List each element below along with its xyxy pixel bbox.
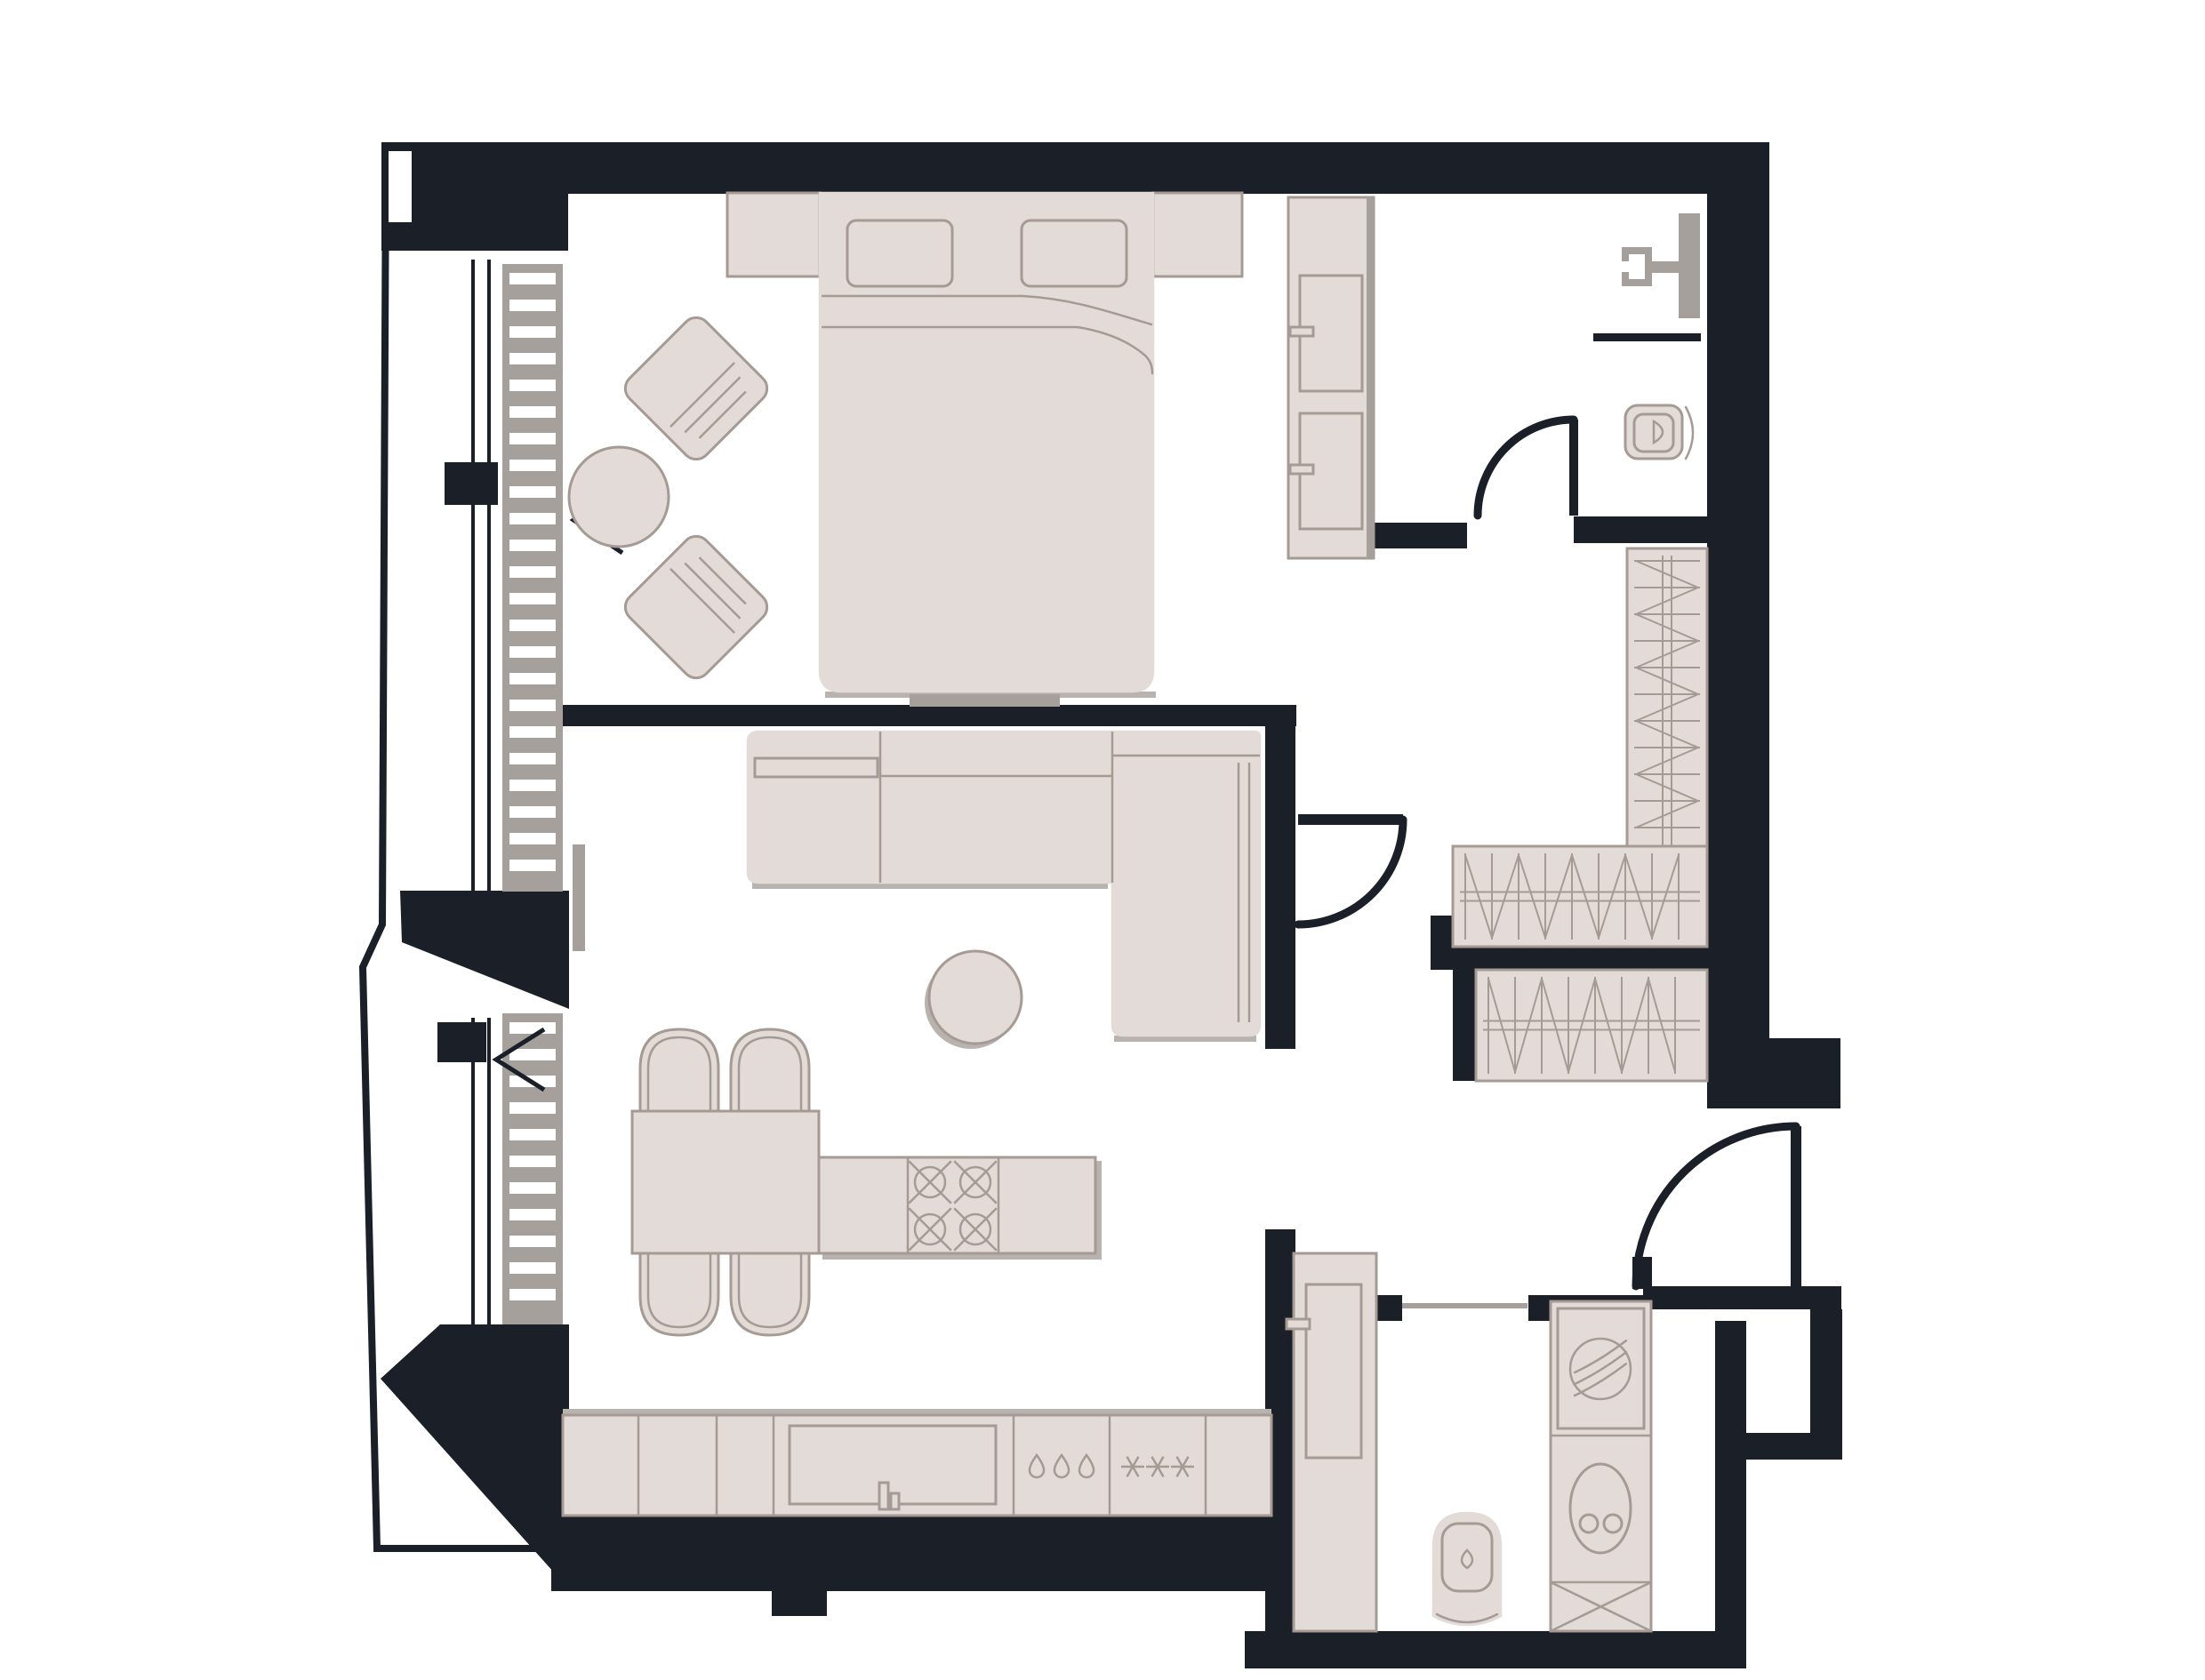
bedroom-radiator-slat <box>509 620 556 631</box>
kitchen-window-pier <box>437 1022 486 1062</box>
bedroom-radiator-slat <box>509 406 556 418</box>
bath2-bottom-wall <box>1245 1631 1746 1668</box>
bedroom-living-divider <box>551 705 1296 726</box>
bath1-partition-line <box>1593 333 1701 341</box>
kitchen-radiator-slat <box>509 1102 556 1114</box>
kitchen-radiator-slat <box>509 1182 556 1194</box>
kitchen-bottom-notch <box>772 1591 827 1616</box>
bedroom-radiator-slat <box>509 593 556 604</box>
bath2-cabinet-door <box>1306 1284 1361 1458</box>
bath2-top-pier <box>1376 1295 1402 1321</box>
bedroom-side-table <box>569 447 669 547</box>
kitchen-island <box>819 1157 1095 1253</box>
floor-plan-svg <box>0 0 2205 1680</box>
bedroom-radiator-slat <box>509 486 556 498</box>
bedroom-radiator-slat <box>509 700 556 711</box>
hall-wardrobe-vertical <box>1627 548 1707 853</box>
bedroom-radiator-slat <box>509 646 556 658</box>
bed-pillow-right <box>1022 220 1127 286</box>
entry-bottom-wall <box>1643 1286 1841 1309</box>
hall-south-wall <box>1431 947 1707 970</box>
bedroom-cabinet-handle-1 <box>1290 327 1313 336</box>
tv-console <box>910 694 1060 707</box>
bed-headboard-right <box>1153 193 1242 276</box>
kitchen-faucet-a <box>879 1483 888 1509</box>
bed-pillow-left <box>847 220 952 286</box>
hall-door-leaf <box>1298 814 1403 825</box>
bedroom-radiator-slat <box>509 540 556 551</box>
kitchen-bottom-wall <box>551 1516 1271 1591</box>
floor-plan <box>0 0 2205 1680</box>
bedroom-radiator-slat <box>509 753 556 764</box>
sofa-armrest-shelf <box>755 758 878 777</box>
bath1-bottom-wall-right <box>1574 516 1707 543</box>
bath2-cabinet-handle <box>1287 1319 1310 1329</box>
bedroom-radiator-slat <box>509 566 556 578</box>
coffee-table <box>929 951 1022 1044</box>
bedroom-radiator-slat <box>509 433 556 444</box>
entry-door-leaf <box>1791 1126 1801 1286</box>
kitchen-radiator-slat <box>509 1209 556 1220</box>
dining-chair-2 <box>731 1029 809 1116</box>
bedroom-radiator-slat <box>509 273 556 284</box>
bath1-faucet-knob-inner <box>1629 254 1645 279</box>
kitchen-radiator-slat <box>509 1129 556 1140</box>
bed-headboard-left <box>727 193 820 276</box>
bedroom-radiator-slat <box>509 460 556 471</box>
living-east-wall-upper <box>1265 705 1295 1049</box>
dining-table <box>632 1111 819 1253</box>
kitchen-radiator-slat <box>509 1262 556 1274</box>
bedroom-radiator-slat <box>509 833 556 844</box>
bedroom-radiator-slat <box>509 300 556 311</box>
bedroom-cabinet-handle-2 <box>1290 465 1313 474</box>
dining-chair-4 <box>731 1248 809 1335</box>
right-wall <box>1707 142 1769 1038</box>
kitchen-radiator-slat <box>509 1049 556 1060</box>
tv <box>573 844 585 951</box>
kitchen-faucet-b <box>891 1493 899 1509</box>
dining-chair-3 <box>640 1248 718 1335</box>
top-wall <box>381 142 1769 194</box>
facade-notch <box>389 151 412 222</box>
bedroom-radiator-slat <box>509 353 556 364</box>
bath1-faucet-stem <box>1650 261 1679 273</box>
bath1-door-leaf <box>1569 420 1578 516</box>
bedroom-radiator-slat <box>509 513 556 524</box>
closet-lower-left-wall <box>1453 970 1476 1081</box>
bedroom-radiator-slat <box>509 860 556 871</box>
bath1-sink-counter <box>1679 213 1700 318</box>
kitchen-radiator-slat <box>509 1236 556 1247</box>
bath1-faucet-knob-notch <box>1622 261 1629 272</box>
entry-stub-wall <box>1707 1038 1840 1108</box>
kitchen-radiator-slat <box>509 1156 556 1167</box>
bedroom-cabinet-back-edge <box>1367 197 1374 558</box>
entry-corner-wall-h <box>1746 1433 1842 1460</box>
dining-chair-1 <box>640 1029 718 1116</box>
bath2-right-wall <box>1715 1321 1746 1631</box>
kitchen-radiator-slat <box>509 1289 556 1300</box>
bedroom-radiator-slat <box>509 726 556 738</box>
bedroom-radiator-slat <box>509 806 556 818</box>
kitchen-radiator-slat <box>509 1022 556 1034</box>
bedroom-radiator-slat <box>509 780 556 791</box>
hall-wardrobe-upper <box>1453 846 1707 947</box>
bedroom-radiator-slat <box>509 380 556 391</box>
bedroom-radiator-slat <box>509 326 556 338</box>
bedroom-radiator-slat <box>509 673 556 684</box>
